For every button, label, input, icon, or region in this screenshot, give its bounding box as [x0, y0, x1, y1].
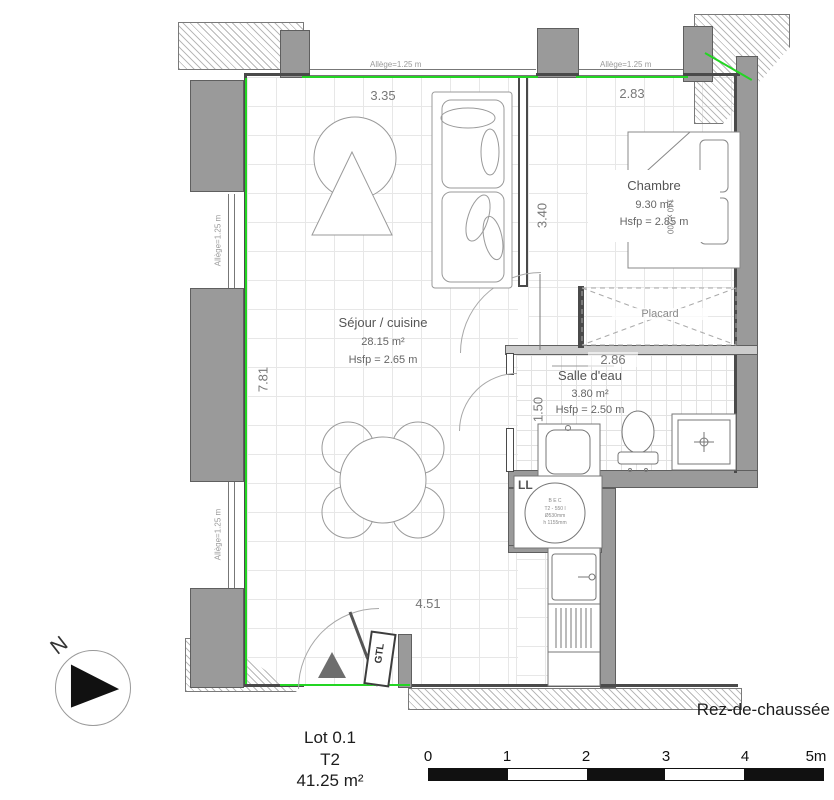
washer-label: LL — [518, 478, 533, 492]
chambre-area: 9.30 m² — [590, 199, 718, 211]
placard-label: Placard — [612, 308, 708, 320]
lot-boundary-left — [245, 78, 247, 684]
scale-segment — [508, 769, 587, 780]
partition-sejour-chambre — [518, 75, 528, 287]
scale-tick-0: 0 — [418, 748, 438, 765]
lot-label: Lot 0.1 — [250, 728, 410, 748]
wall-face-bottom-right — [412, 684, 738, 687]
scale-segment — [665, 769, 744, 780]
dim-top-chambre: 2.83 — [602, 86, 662, 101]
lot-boundary-top-chambre — [576, 76, 688, 78]
scale-segment — [744, 769, 823, 780]
wall-left-1 — [190, 80, 244, 192]
scale-tick-2: 2 — [576, 748, 596, 765]
washer-spec-2: Ø530mm — [529, 513, 581, 519]
wall-face-right — [734, 73, 737, 473]
window-top-chambre — [579, 69, 683, 76]
allege-label-top-sejour: Allège=1.25 m — [370, 60, 421, 69]
wall-right — [736, 56, 758, 472]
scale-tick-4: 4 — [735, 748, 755, 765]
window-top-sejour — [310, 69, 536, 76]
washer-spec-3: h 1155mm — [529, 520, 581, 526]
scale-bar-segments — [428, 768, 824, 781]
north-label: N — [46, 632, 73, 660]
wall-pier-top-1 — [280, 30, 310, 78]
sejour-area: 28.15 m² — [303, 336, 463, 348]
sejour-ceiling-height: Hsfp = 2.65 m — [303, 354, 463, 366]
floor-name-label: Rez-de-chaussée — [640, 700, 830, 720]
dim-chambre-depth: 3.40 — [535, 191, 550, 241]
wall-left-3 — [190, 588, 244, 688]
wall-pier-top-2 — [537, 28, 579, 78]
washer-drum-label: B E C — [529, 498, 581, 504]
allege-label-top-chambre: Allège=1.25 m — [600, 60, 651, 69]
scale-segment — [587, 769, 666, 780]
scale-tick-1: 1 — [497, 748, 517, 765]
dim-left-height: 7.81 — [256, 355, 271, 405]
chambre-ceiling-height: Hsfp = 2.85 m — [590, 216, 718, 228]
washer-spec-1: T2 - 550 l — [529, 506, 581, 512]
wall-salle-eau-bottom — [508, 470, 758, 488]
wall-closet-bottom — [508, 545, 602, 553]
wall-kitchen-right — [600, 488, 616, 688]
wall-closet-left — [508, 488, 516, 548]
sejour-name: Séjour / cuisine — [303, 315, 463, 330]
floor-grid-sejour — [247, 77, 518, 685]
dim-top-sejour: 3.35 — [353, 88, 413, 103]
scale-segment — [429, 769, 508, 780]
wall-left-2 — [190, 288, 244, 482]
entrance-marker-icon — [318, 652, 346, 678]
partition-placard-left — [578, 286, 584, 348]
floor-plan: Allège=1.25 m Allège=1.25 m Allège=1.25 … — [0, 0, 834, 800]
chambre-name: Chambre — [590, 178, 718, 193]
wall-pier-gtl — [398, 634, 412, 688]
lot-type-label: T2 — [250, 750, 410, 770]
allege-label-left-upper: Allège=1.25 m — [214, 211, 223, 271]
dim-salle-eau-width: 2.86 — [588, 352, 638, 367]
dim-salle-eau-depth: 1.50 — [531, 385, 546, 435]
bed-size-label: 140 x 200 — [666, 187, 675, 247]
lot-boundary-top-sejour — [302, 76, 538, 78]
allege-label-left-lower: Allège=1.25 m — [214, 505, 223, 565]
scale-tick-3: 3 — [656, 748, 676, 765]
lot-area-label: 41.25 m² — [250, 771, 410, 791]
scale-tick-5: 5m — [800, 748, 832, 765]
partition-salle-eau-left-lower — [506, 428, 514, 472]
salle-eau-name: Salle d'eau — [525, 368, 655, 383]
window-left-upper — [228, 194, 235, 288]
partition-salle-eau-left-upper — [506, 353, 514, 375]
dim-bottom: 4.51 — [398, 596, 458, 611]
window-left-lower — [228, 482, 235, 588]
